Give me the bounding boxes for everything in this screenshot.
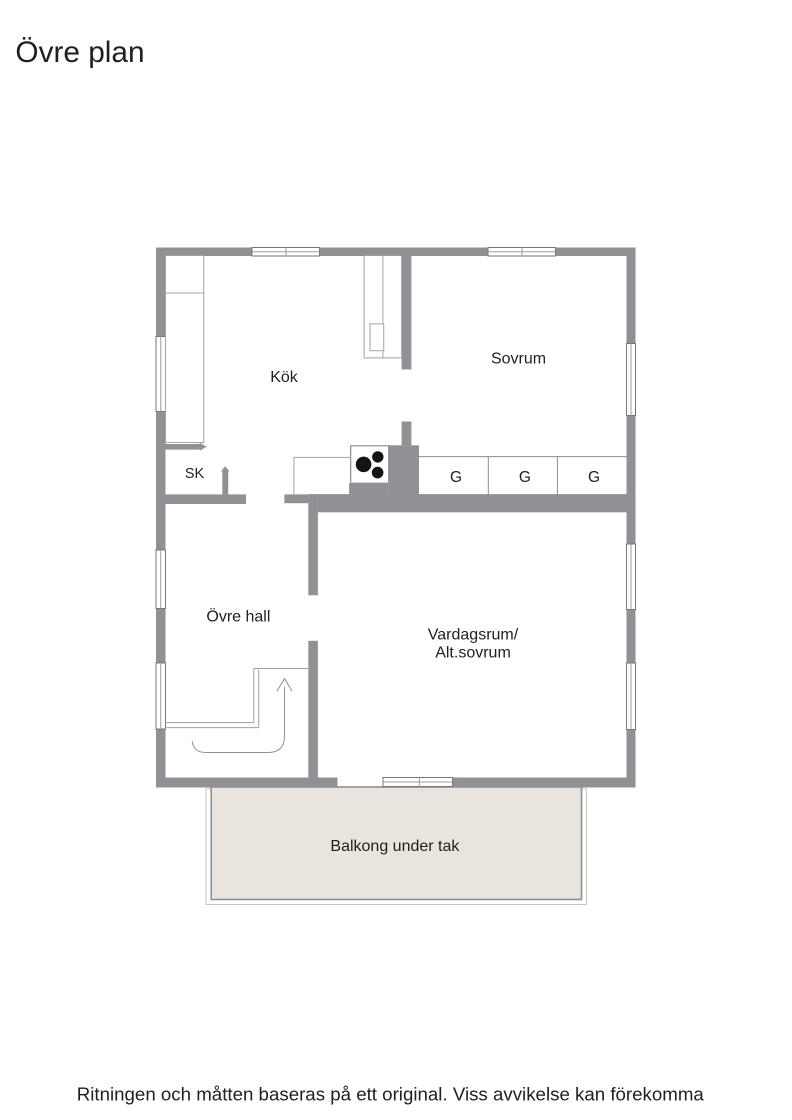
svg-text:G: G — [450, 469, 462, 486]
svg-text:Balkong under tak: Balkong under tak — [330, 838, 460, 855]
svg-text:Ritningen och måtten baseras p: Ritningen och måtten baseras på ett orig… — [77, 1083, 705, 1104]
svg-text:G: G — [588, 469, 600, 486]
svg-text:Övre plan: Övre plan — [15, 36, 144, 69]
svg-text:Vardagsrum/: Vardagsrum/ — [428, 626, 519, 643]
svg-text:Alt.sovrum: Alt.sovrum — [435, 644, 511, 661]
svg-text:Övre hall: Övre hall — [206, 608, 270, 626]
svg-text:Sovrum: Sovrum — [491, 351, 546, 368]
svg-text:SK: SK — [185, 466, 205, 482]
svg-text:Kök: Kök — [270, 369, 299, 386]
svg-text:G: G — [519, 469, 531, 486]
